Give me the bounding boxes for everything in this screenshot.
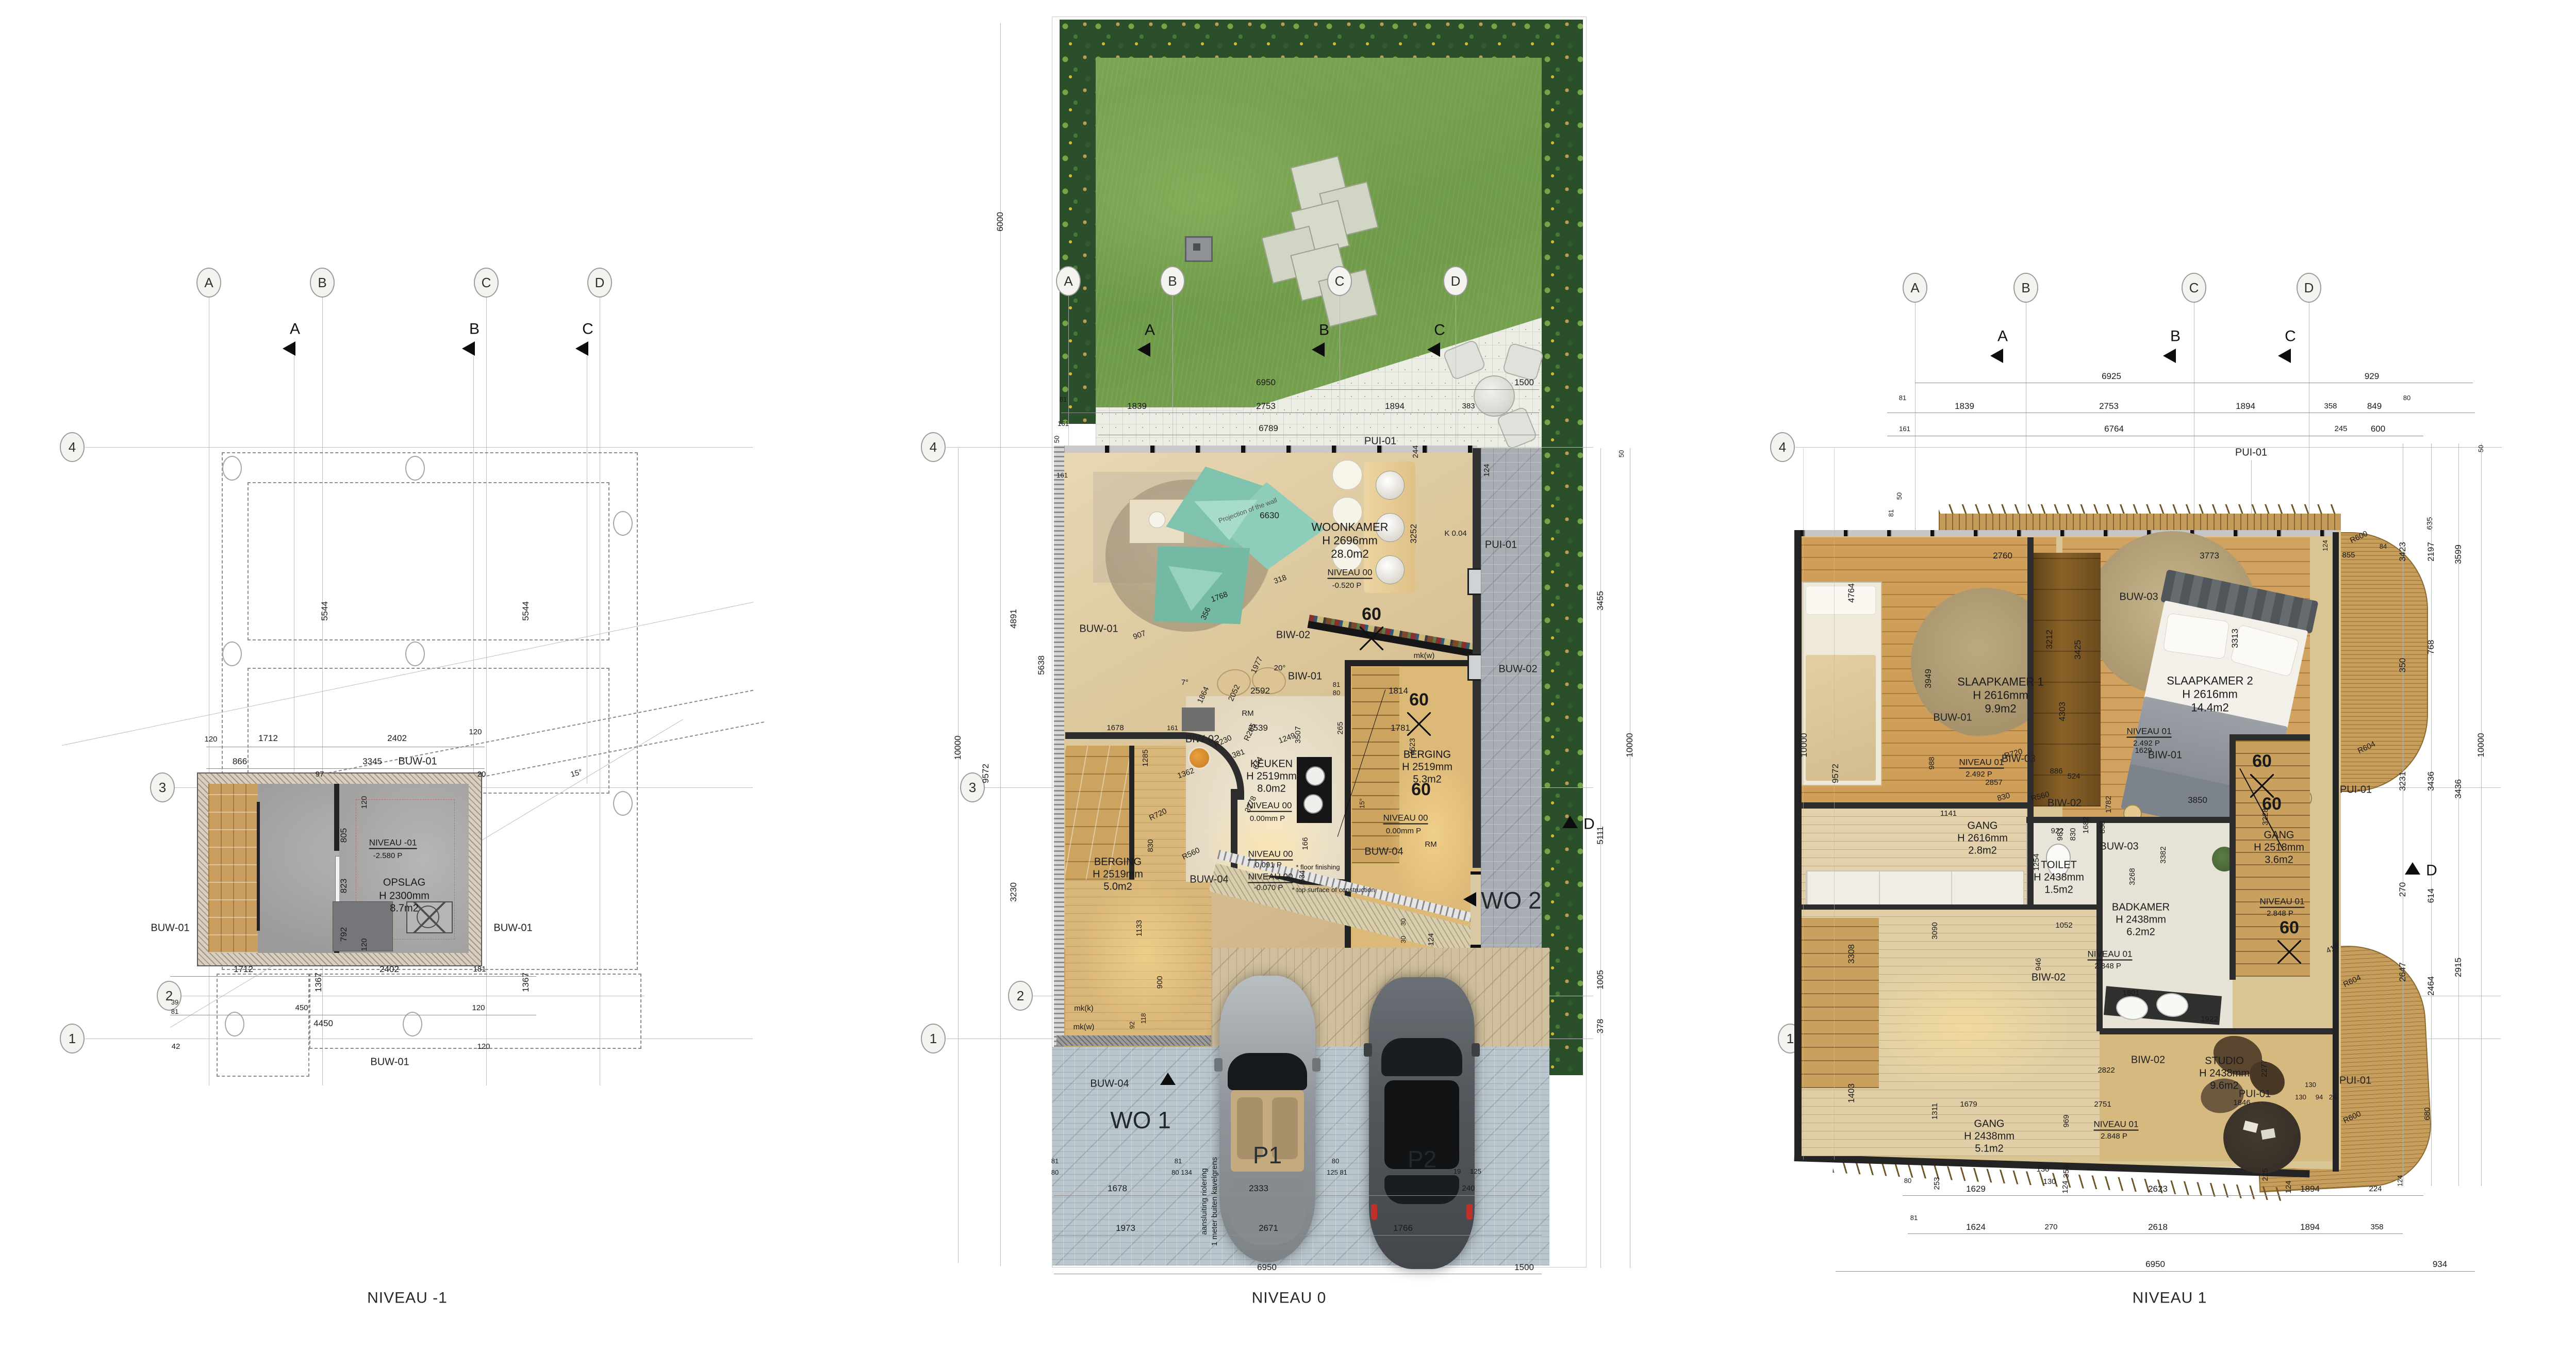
dim-label: 124 bbox=[2322, 540, 2329, 551]
dim-label: 823 bbox=[339, 879, 349, 893]
dim-label: 4891 bbox=[1009, 609, 1018, 629]
section-arrow-icon bbox=[1137, 342, 1150, 357]
wall-type-label: PUI-01 bbox=[1485, 540, 1517, 551]
dim-label: 1839 bbox=[1955, 402, 1974, 411]
dim-label: 224 bbox=[2369, 1185, 2382, 1193]
dim-label: 2915 bbox=[2454, 958, 2463, 977]
dim-label: 838 bbox=[2099, 820, 2107, 833]
dim-label: 50 bbox=[2478, 445, 2485, 452]
dim-label: 6764 bbox=[2104, 424, 2124, 434]
room-name: STUDIO bbox=[2205, 1056, 2244, 1067]
dim-label: 80 134 bbox=[1171, 1169, 1192, 1176]
dim-label: 3268 bbox=[2128, 868, 2137, 885]
grid-line bbox=[209, 297, 209, 1085]
level-marker: NIVEAU 01 bbox=[1959, 758, 2004, 769]
dim-label: 1500 bbox=[1514, 1263, 1534, 1272]
marker-60: 60 bbox=[1411, 781, 1431, 799]
dim-label: 1678 bbox=[1108, 1184, 1127, 1193]
dim-label: 1839 bbox=[1127, 402, 1147, 411]
dim-label: 5111 bbox=[1596, 826, 1605, 844]
room-name: GANG bbox=[1974, 1119, 2005, 1130]
note-line: 1 meter buiten kavelgrens bbox=[1211, 1157, 1219, 1246]
dim-label: 9572 bbox=[981, 764, 990, 783]
room-name: SLAAPKAMER 2 bbox=[2167, 674, 2253, 686]
dim-label: 3230 bbox=[1009, 882, 1018, 902]
room-height: H 2438mm bbox=[2034, 872, 2084, 883]
dim-label: 768 bbox=[2426, 640, 2436, 654]
dim-label: 922 bbox=[2051, 827, 2063, 835]
grid-bubble-C: C bbox=[2182, 273, 2206, 303]
rm-label: RM bbox=[1425, 841, 1436, 849]
dim-label: 1814 bbox=[1389, 686, 1408, 696]
dim-label: 92 bbox=[1129, 1022, 1136, 1029]
grid-bubble-D: D bbox=[1443, 266, 1468, 296]
dim-label: 6789 bbox=[1259, 424, 1278, 433]
mk-label: mk(w) bbox=[1074, 1023, 1095, 1031]
level-marker: NIVEAU 00 bbox=[1248, 850, 1293, 861]
section-label-A: A bbox=[1997, 328, 2008, 344]
dim-label: 124 bbox=[2397, 1175, 2404, 1187]
grid-bubble-A: A bbox=[196, 268, 221, 298]
section-label-D: D bbox=[1583, 816, 1595, 832]
dim-label: 3090 bbox=[1931, 922, 1939, 939]
section-arrow-icon bbox=[575, 341, 588, 356]
dim-label: 1141 bbox=[1940, 810, 1957, 818]
angle-label: 7° bbox=[1181, 679, 1188, 687]
angle-label: 15° bbox=[1359, 798, 1366, 809]
level-marker: NIVEAU 01 bbox=[2088, 950, 2133, 961]
wall-type-label: BUW-03 bbox=[2119, 592, 2158, 603]
mk-label: mk(w) bbox=[1414, 652, 1435, 660]
wall-type-label: PUI-01 bbox=[2340, 785, 2372, 796]
dim-label: 120 bbox=[472, 1004, 485, 1012]
level-value: 2.848 P bbox=[2094, 962, 2121, 970]
room-height: H 2519mm bbox=[1402, 762, 1452, 773]
room-area: 2.8m2 bbox=[1968, 846, 1997, 857]
level-marker: NIVEAU 01 bbox=[2260, 897, 2305, 908]
dim-label: 161 bbox=[1058, 420, 1069, 427]
section-label-C: C bbox=[582, 321, 593, 337]
level-value: 2.492 P bbox=[1966, 770, 1992, 779]
dim-label: 5638 bbox=[1037, 655, 1046, 675]
section-label-A: A bbox=[1145, 322, 1155, 338]
entry-arrow-icon bbox=[1160, 1073, 1176, 1085]
dim-label: 81 bbox=[1060, 396, 1067, 403]
dim-label: 830 bbox=[1147, 839, 1155, 852]
level-value: 0.091 P bbox=[1255, 861, 1282, 869]
room-height: H 2616mm bbox=[1973, 689, 2028, 701]
grid-bubble-B: B bbox=[1160, 266, 1185, 296]
section-label-B: B bbox=[1319, 322, 1329, 338]
room-area: 9.6m2 bbox=[2210, 1081, 2239, 1092]
wall-type-label: BUW-04 bbox=[1364, 847, 1403, 858]
marker-60: 60 bbox=[1409, 691, 1429, 710]
dim-label: 10000 bbox=[953, 735, 963, 760]
grid-line bbox=[85, 447, 753, 448]
dim-label: 118 bbox=[1140, 1013, 1147, 1024]
dim-label: 81 bbox=[1910, 1214, 1918, 1222]
dim-label: 855 bbox=[2342, 551, 2355, 559]
marker-60: 60 bbox=[1362, 605, 1381, 624]
dim-label: 2751 bbox=[2094, 1100, 2111, 1109]
dim-label: 9572 bbox=[1831, 764, 1840, 783]
dim-label: 3423 bbox=[2398, 542, 2407, 562]
section-arrow-icon bbox=[1312, 342, 1325, 357]
level-value: -0.070 P bbox=[1254, 884, 1283, 892]
section-arrow-icon bbox=[1427, 342, 1440, 357]
car-p2 bbox=[1369, 977, 1475, 1269]
dim-label: 3773 bbox=[2200, 551, 2219, 561]
dim-label: 6630 bbox=[1260, 511, 1279, 520]
dim-label: 886 bbox=[2050, 767, 2062, 776]
dim-label: 81 bbox=[1333, 681, 1340, 688]
dim-label: 130 bbox=[2305, 1081, 2316, 1089]
section-label-D: D bbox=[2426, 862, 2437, 879]
dim-label: 3345 bbox=[362, 757, 382, 766]
dim-label: 4303 bbox=[2058, 702, 2067, 721]
dim-label: 2857 bbox=[1985, 779, 2002, 787]
dim-label: 6000 bbox=[996, 212, 1005, 232]
dim-label: 3850 bbox=[2188, 796, 2207, 805]
dim-label: 81 bbox=[1888, 509, 1895, 517]
dim-label: 81 bbox=[1899, 394, 1906, 402]
dim-label: 1782 bbox=[2105, 796, 2113, 813]
dim-label: 830 bbox=[2069, 828, 2077, 841]
unit-label-wo2: WO 2 bbox=[1481, 888, 1542, 913]
dim-label: 270 bbox=[2044, 1223, 2057, 1231]
room-height: H 2519mm bbox=[1246, 771, 1297, 782]
section-arrow-icon bbox=[283, 341, 295, 356]
hedge-top bbox=[1060, 20, 1583, 58]
pendant-lamp bbox=[1376, 555, 1405, 584]
louver-top-band bbox=[1939, 514, 2341, 532]
dim-label: 3212 bbox=[2045, 630, 2054, 649]
front-door-wo2 bbox=[1471, 871, 1482, 948]
plan-title: NIVEAU -1 bbox=[367, 1290, 448, 1306]
wall-type-label: BUW-01 bbox=[151, 923, 189, 934]
dim-label: 524 bbox=[2067, 772, 2080, 781]
room-area: 8.7m2 bbox=[390, 903, 419, 914]
garden-paving bbox=[1096, 407, 1542, 451]
dim-label: 358 bbox=[2324, 402, 2337, 410]
grid-bubble-2: 2 bbox=[1008, 981, 1033, 1011]
dim-label: 1629 bbox=[2135, 747, 2152, 755]
dim-label: 1133 bbox=[1135, 920, 1144, 936]
note-line: aansluiting riolering bbox=[1200, 1168, 1209, 1234]
dim-label: 240 bbox=[1462, 1184, 1475, 1193]
room-height: H 2438mm bbox=[2116, 915, 2166, 926]
dashed-outline bbox=[247, 482, 609, 640]
dim-label: 125 81 bbox=[1327, 1169, 1347, 1176]
grid-bubble-4: 4 bbox=[60, 432, 85, 462]
dim-label: 5544 bbox=[521, 601, 531, 621]
architectural-drawing-sheet: A B C D 4 3 2 1 A B C 120 1712 2402 120 … bbox=[0, 0, 2576, 1350]
dim-label: 792 bbox=[339, 927, 349, 942]
opening-symbol bbox=[222, 456, 242, 481]
dim-label: 358 bbox=[2370, 1223, 2383, 1231]
dim-label: 10000 bbox=[2476, 733, 2486, 757]
wall-type-label: BUW-01 bbox=[1079, 624, 1118, 635]
mk-label: mk(k) bbox=[1074, 1005, 1094, 1013]
dim-label: 1846 bbox=[2233, 1099, 2250, 1107]
dim-label: 80 bbox=[1051, 1169, 1059, 1176]
windshield bbox=[1228, 1053, 1307, 1090]
code-label: K 0.04 bbox=[1444, 530, 1466, 538]
marker-60: 60 bbox=[2252, 752, 2272, 771]
dim-label: 1894 bbox=[2236, 402, 2255, 411]
level-value: 2.848 P bbox=[2267, 910, 2293, 918]
dim-label: 1973 bbox=[1116, 1224, 1135, 1233]
dim-label: 3599 bbox=[2454, 545, 2463, 564]
marker-60: 60 bbox=[2280, 919, 2299, 937]
opening-symbol bbox=[403, 1012, 422, 1036]
dim-label: 4450 bbox=[313, 1019, 333, 1028]
level-value: 0.00mm P bbox=[1250, 815, 1285, 823]
grid-bubble-A: A bbox=[1056, 266, 1081, 296]
room-name: TOILET bbox=[2041, 860, 2077, 871]
level-marker: NIVEAU 00 bbox=[1328, 568, 1373, 579]
dim-label: 1624 bbox=[1966, 1223, 1986, 1232]
section-label-C: C bbox=[2285, 328, 2296, 344]
dim-label: 6950 bbox=[2145, 1260, 2165, 1269]
dim-label: 80 bbox=[1332, 1158, 1339, 1165]
section-arrow-icon bbox=[462, 341, 475, 356]
grid-bubble-D: D bbox=[587, 268, 612, 298]
dim-label: 130 bbox=[2043, 1178, 2056, 1186]
grid-bubble-A: A bbox=[1903, 273, 1927, 303]
section-arrow-icon bbox=[2278, 349, 2291, 363]
wall-bottom-left bbox=[1056, 1035, 1211, 1046]
kitchen-cabinet bbox=[1182, 707, 1215, 731]
dim-label: 2402 bbox=[387, 734, 407, 743]
basement-stairs bbox=[208, 784, 258, 953]
dim-label: 50 bbox=[1053, 436, 1061, 443]
section-label-C: C bbox=[1434, 322, 1445, 338]
dim-label: 120 bbox=[477, 1043, 490, 1051]
dim-label: 1922 bbox=[2201, 1015, 2218, 1024]
dim-label: 805 bbox=[339, 828, 349, 843]
dim-label: 244 bbox=[1412, 445, 1420, 458]
pendant-lamp bbox=[1376, 471, 1405, 500]
wall-type-label: BUW-02 bbox=[1498, 664, 1537, 675]
section-arrow-icon bbox=[1562, 816, 1578, 828]
room-area: 9.9m2 bbox=[1985, 702, 2016, 714]
room-area: 1.5m2 bbox=[2044, 885, 2073, 896]
dim-label: 1894 bbox=[1385, 402, 1405, 411]
closet-white bbox=[1806, 870, 2024, 906]
dim-label: 2464 bbox=[2426, 976, 2436, 996]
dim-label: 81 bbox=[171, 1008, 178, 1015]
dim-label: 3231 bbox=[2398, 771, 2407, 791]
dim-label: 265 bbox=[1336, 721, 1345, 734]
hedge-right bbox=[1542, 20, 1583, 1075]
dim-label: 1285 bbox=[1142, 749, 1150, 766]
opening-symbol bbox=[613, 511, 633, 536]
dim-label: 4764 bbox=[1847, 583, 1856, 603]
dim-label: 450 bbox=[295, 1004, 308, 1012]
wall-type-label: PUI-01 bbox=[2339, 1076, 2371, 1086]
wall-type-label: BIW-02 bbox=[1185, 734, 1219, 745]
dim-label: 253 bbox=[1933, 1177, 1941, 1190]
dim-label: 3949 bbox=[1924, 669, 1933, 688]
dim-label: 1712 bbox=[258, 734, 278, 743]
dim-label: 350 bbox=[2398, 658, 2407, 672]
dim-label: 3436 bbox=[2426, 771, 2436, 791]
grid-bubble-1: 1 bbox=[921, 1024, 946, 1053]
section-arrow-icon bbox=[2405, 862, 2420, 875]
parking-label-p1: P1 bbox=[1253, 1143, 1282, 1167]
wo2-arrow-icon bbox=[1463, 892, 1476, 907]
dim-label: 161 bbox=[1899, 425, 1910, 433]
grid-bubble-3: 3 bbox=[150, 772, 175, 802]
dim-label: 39 bbox=[171, 999, 178, 1006]
dim-label: 1311 bbox=[1931, 1103, 1939, 1119]
dim-label: 50 bbox=[1618, 450, 1625, 457]
section-label-B: B bbox=[469, 321, 480, 337]
dim-label: 124 bbox=[1427, 933, 1435, 946]
dim-label: 94 bbox=[2316, 1094, 2323, 1101]
dim-label: 1801 bbox=[2122, 989, 2139, 997]
room-height: H 2696mm bbox=[1322, 534, 1378, 546]
dim-label: 635 bbox=[2426, 517, 2434, 530]
level-note: * top surface of construction bbox=[1292, 886, 1375, 894]
dim-label: 81 bbox=[1051, 1158, 1059, 1165]
dim-label: 1894 bbox=[2300, 1223, 2320, 1232]
room-area: 6.2m2 bbox=[2126, 927, 2155, 938]
wall-type-label: BUW-03 bbox=[2100, 842, 2138, 852]
dim-label: 24 bbox=[2329, 1094, 2336, 1101]
wall-type-label: BIW-02 bbox=[2032, 973, 2066, 983]
wall-type-label: BIW-02 bbox=[2131, 1055, 2165, 1066]
room-name: WOONKAMER bbox=[1311, 521, 1388, 533]
dim-label: 166 bbox=[1301, 837, 1310, 850]
dim-label: 5544 bbox=[320, 601, 329, 621]
dim-label: 359 bbox=[2062, 1165, 2071, 1178]
dim-label: 2277 bbox=[2260, 1060, 2269, 1077]
plan-title: NIVEAU 0 bbox=[1252, 1290, 1327, 1306]
room-height: H 2518mm bbox=[2254, 843, 2304, 853]
room-name: BADKAMER bbox=[2112, 902, 2170, 913]
room-name: GANG bbox=[2264, 830, 2294, 841]
dim-label: 1682 bbox=[2082, 816, 2090, 833]
dim-label: 1005 bbox=[1596, 970, 1605, 990]
dim-label: 849 bbox=[2367, 402, 2382, 411]
dim-label: 2618 bbox=[2148, 1223, 2168, 1232]
dim-label: 1254 bbox=[2033, 853, 2041, 870]
dim-label: 245 bbox=[2334, 425, 2347, 433]
dim-label: 3425 bbox=[2073, 640, 2083, 660]
dim-label: 6950 bbox=[1256, 378, 1276, 387]
wall-type-label: BUW-01 bbox=[493, 923, 532, 934]
dim-label: 3313 bbox=[2231, 629, 2240, 648]
grid-bubble-B: B bbox=[310, 268, 335, 298]
dim-label: 969 bbox=[2062, 1114, 2071, 1127]
wall-top-glass bbox=[1801, 530, 2337, 536]
opening-symbol bbox=[222, 641, 242, 666]
dim-label: 84 bbox=[2380, 543, 2387, 550]
level-value: -0.520 P bbox=[1332, 582, 1362, 590]
level-value: -2.580 P bbox=[373, 852, 403, 860]
dim-label: 534 bbox=[1298, 870, 1307, 883]
room-height: H 2438mm bbox=[1964, 1131, 2014, 1142]
rear-window bbox=[1384, 1175, 1459, 1204]
dining-chair bbox=[1332, 460, 1362, 490]
room-area: 28.0m2 bbox=[1331, 548, 1368, 559]
room-height: H 2616mm bbox=[2182, 688, 2238, 700]
dim-label: 80 bbox=[2403, 394, 2410, 402]
grid-bubble-C: C bbox=[1327, 266, 1352, 296]
dim-label: 2760 bbox=[1993, 551, 2012, 561]
dim-label: 6925 bbox=[2102, 372, 2121, 381]
dim-label: 1500 bbox=[1514, 378, 1534, 387]
room-name: SLAAPKAMER 1 bbox=[1957, 676, 2044, 687]
wall-type-label: BIW-01 bbox=[2148, 750, 2182, 761]
dim-label: 1678 bbox=[1107, 724, 1124, 732]
dim-label: 50 bbox=[1896, 492, 1903, 500]
unit-label-wo1: WO 1 bbox=[1110, 1108, 1171, 1132]
dim-label: 130 bbox=[2036, 1165, 2049, 1174]
room-name: OPSLAG bbox=[383, 878, 425, 888]
dim-label: 2753 bbox=[2099, 402, 2119, 411]
dim-label: 125 bbox=[1470, 1168, 1481, 1175]
dim-label: 2197 bbox=[2426, 542, 2436, 562]
room-height: H 2300mm bbox=[379, 891, 430, 902]
dim-label: 120 bbox=[469, 728, 482, 736]
car-p1 bbox=[1219, 976, 1315, 1262]
level-value: 2.848 P bbox=[2101, 1132, 2127, 1141]
section-arrow-icon bbox=[2163, 349, 2176, 363]
dim-label: 6950 bbox=[1257, 1263, 1277, 1272]
dim-label: 120 bbox=[360, 938, 369, 951]
dim-label: 42 bbox=[172, 1043, 180, 1051]
dim-label: 30 bbox=[1400, 918, 1407, 926]
dim-label: 124 bbox=[2285, 1180, 2293, 1193]
dim-label: 80 bbox=[1904, 1177, 1911, 1184]
dim-label: 2753 bbox=[1256, 402, 1276, 411]
dim-label: 680 bbox=[2423, 1107, 2432, 1120]
room-area: 14.4m2 bbox=[2191, 701, 2228, 713]
dim-label: 2822 bbox=[2098, 1066, 2115, 1075]
dim-label: 614 bbox=[2426, 888, 2436, 903]
windshield bbox=[1381, 1038, 1462, 1076]
wall-type-label: BUW-04 bbox=[1090, 1079, 1129, 1090]
wall-type-label: BUW-01 bbox=[370, 1057, 409, 1068]
dim-label: 934 bbox=[2433, 1260, 2447, 1269]
grid-bubble-2: 2 bbox=[157, 981, 181, 1011]
dim-label: 19 bbox=[1454, 1168, 1461, 1175]
dim-label: 600 bbox=[2371, 424, 2385, 434]
opening-symbol bbox=[405, 641, 425, 666]
dim-label: 97 bbox=[316, 770, 324, 779]
dim-label: 2333 bbox=[1249, 1184, 1268, 1193]
dim-label: 161 bbox=[1167, 725, 1178, 732]
opening-symbol bbox=[613, 791, 633, 816]
room-height: H 2438mm bbox=[2199, 1068, 2250, 1079]
louver-top-fringe bbox=[1939, 504, 2341, 514]
wall-type-label: BUW-04 bbox=[1190, 875, 1228, 885]
parking-label-p2: P2 bbox=[1408, 1147, 1436, 1172]
dim-label: 3436 bbox=[2454, 779, 2463, 799]
wall-left bbox=[1054, 446, 1064, 1047]
dim-label: 3455 bbox=[1596, 591, 1605, 611]
grid-bubble-B: B bbox=[2013, 273, 2038, 303]
room-area: 5.0m2 bbox=[1103, 882, 1132, 893]
wall-type-label: BIW-02 bbox=[2047, 798, 2082, 809]
dim-label: 1629 bbox=[1966, 1184, 1986, 1194]
dim-label: 3252 bbox=[1409, 524, 1418, 544]
room-height: H 2519mm bbox=[1093, 869, 1143, 880]
dim-label: 1403 bbox=[1847, 1083, 1856, 1103]
